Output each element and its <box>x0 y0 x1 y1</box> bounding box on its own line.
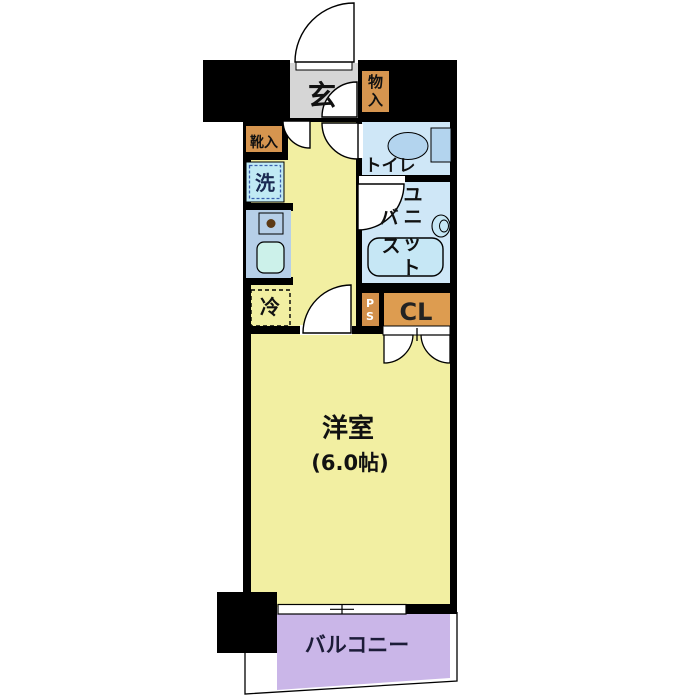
unit-bath-ni: ニ <box>403 206 422 228</box>
wall-top-left <box>203 60 290 122</box>
main-room-size-label: (6.0帖) <box>311 451 388 475</box>
unit-bath-yu: ユ <box>403 184 422 206</box>
wall-kitchen-bottom <box>244 277 293 285</box>
unit-bath-ba: バ <box>379 207 398 229</box>
kitchen-unit <box>246 210 291 278</box>
pipe-space-label-s: S <box>366 310 374 323</box>
burner-knob <box>267 219 276 228</box>
shoe-storage-label: 靴入 <box>250 134 278 151</box>
wall-right <box>450 122 457 614</box>
storage-upper-label-1: 物 <box>368 73 383 91</box>
washbasin <box>432 215 450 237</box>
pipe-space-label-p: P <box>366 297 374 310</box>
wall-bottom-right <box>405 604 457 614</box>
washer-label: 洗 <box>255 171 275 195</box>
entrance-label: 玄 <box>308 79 336 112</box>
fridge-label: 冷 <box>260 295 280 319</box>
kitchen-sink <box>257 242 284 273</box>
toilet-label: トイレ <box>365 156 416 176</box>
bath-door-opening <box>359 176 405 184</box>
floor-plan-svg: 玄 物 入 靴入 洗 トイレ ユ ニ ッ ト バ ス 冷 P S CL 洋室 (… <box>0 0 700 700</box>
unit-bath-tsu: ッ <box>402 232 421 254</box>
wall-kitchen-top <box>244 203 293 211</box>
storage-upper-label-2: 入 <box>368 91 383 109</box>
balcony-label: バルコニー <box>305 633 410 657</box>
unit-bath-to: ト <box>401 257 420 279</box>
wall-bath-closet <box>356 283 452 293</box>
balcony-window <box>278 604 406 614</box>
unit-bath-su: ス <box>381 235 400 257</box>
toilet-tank <box>431 128 451 162</box>
floor-plan-image: 玄 物 入 靴入 洗 トイレ ユ ニ ッ ト バ ス 冷 P S CL 洋室 (… <box>0 0 700 700</box>
wall-ps-cl-gap <box>379 293 384 328</box>
closet-label: CL <box>400 298 433 326</box>
wall-bottom-left-block <box>217 592 277 653</box>
main-room-label: 洋室 <box>322 413 374 444</box>
